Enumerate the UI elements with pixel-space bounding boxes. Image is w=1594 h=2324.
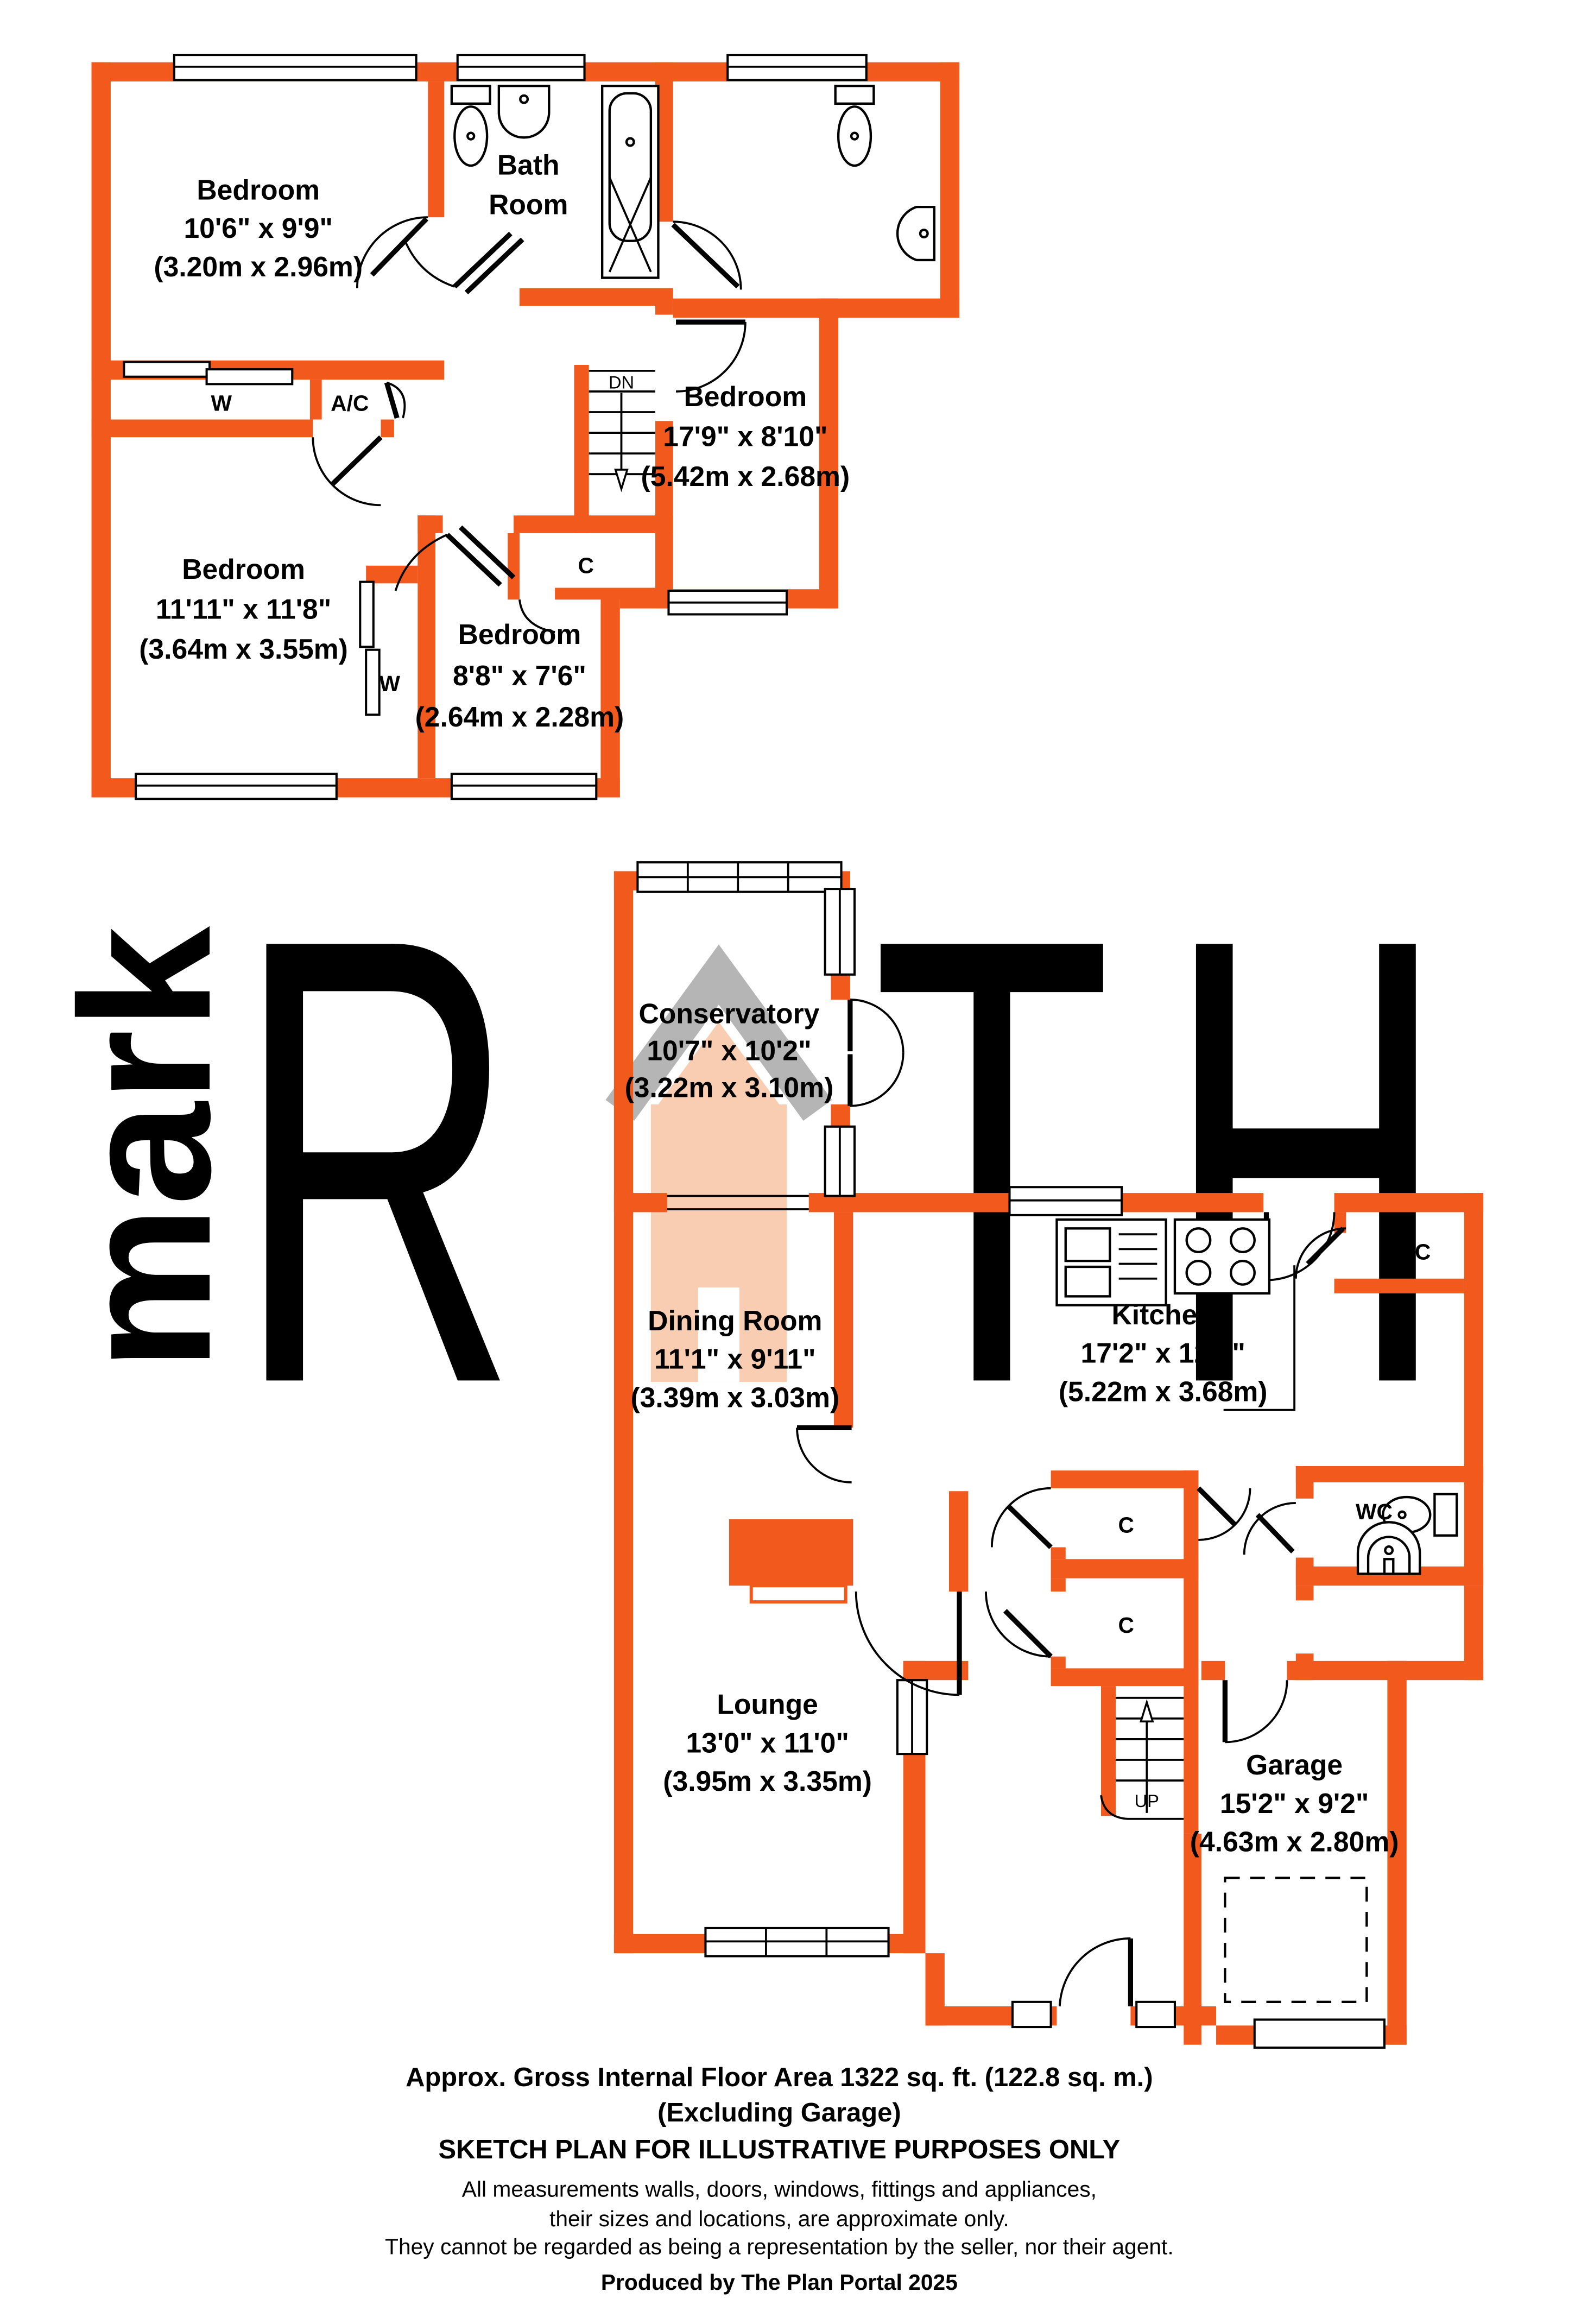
room-size-imperial: 10'7" x 10'2" [647, 1034, 811, 1066]
toilet-icon [452, 86, 490, 104]
kitchen-sink-icon [1066, 1228, 1110, 1261]
sink-icon [499, 86, 549, 137]
airing-cupboard-label: A/C [331, 390, 369, 415]
room-label-bedroom-4: Bedroom [458, 618, 581, 650]
wardrobe-label: W [211, 390, 232, 415]
room-label-kitchen: Kitchen [1112, 1299, 1215, 1330]
sink-tap-icon [1384, 1559, 1393, 1574]
footer-sketch-line: SKETCH PLAN FOR ILLUSTRATIVE PURPOSES ON… [438, 2135, 1120, 2164]
room-size-metric: (5.42m x 2.68m) [641, 460, 850, 492]
floor-plan-page: mark R T H [0, 0, 1594, 2324]
fireplace [729, 1519, 853, 1602]
cupboard-label: C [1415, 1239, 1431, 1264]
footer-disclaimer-2: their sizes and locations, are approxima… [549, 2206, 1009, 2231]
room-size-imperial: 11'1" x 9'11" [654, 1343, 816, 1375]
room-label-garage: Garage [1246, 1749, 1343, 1780]
room-label-dining-room: Dining Room [648, 1305, 822, 1336]
footer-disclaimer-3: They cannot be regarded as being a repre… [385, 2234, 1174, 2259]
cupboard-label: C [578, 553, 594, 578]
cupboard-label: C [1118, 1512, 1134, 1537]
floor-plan-image: mark R T H [0, 0, 1594, 2324]
room-size-imperial: 10'6" x 9'9" [184, 212, 333, 244]
sliding-wardrobe-door [366, 650, 379, 715]
room-size-imperial: 11'11" x 11'8" [156, 593, 331, 625]
watermark-letter-t: T [872, 807, 1112, 1515]
hob-icon [1175, 1220, 1269, 1293]
wardrobe-2-label: W [379, 671, 400, 696]
door-arc [1060, 1938, 1130, 2006]
window [1136, 2002, 1175, 2027]
stairs-down-label: DN [609, 372, 634, 392]
footer-text: Approx. Gross Internal Floor Area 1322 s… [385, 2063, 1174, 2295]
sliding-wardrobe-door [124, 362, 210, 377]
door-leaf [1257, 1515, 1293, 1552]
room-size-imperial: 13'0" x 11'0" [686, 1727, 849, 1758]
room-label-conservatory: Conservatory [638, 997, 819, 1029]
footer-excluding-line: (Excluding Garage) [657, 2098, 901, 2127]
watermark-letter-r: R [234, 807, 518, 1515]
wc-label: WC [1356, 1499, 1393, 1524]
kitchen-sink-icon [1066, 1267, 1110, 1296]
cupboard-label: C [1118, 1613, 1134, 1638]
door-leaf [1005, 1611, 1051, 1656]
first-floor-plan: Bedroom 10'6" x 9'9" (3.20m x 2.96m) Bat… [92, 55, 959, 799]
toilet-icon [1434, 1494, 1457, 1536]
bathroom-fixtures [452, 86, 659, 277]
bathtub-icon [610, 93, 651, 241]
door-leaf [372, 219, 427, 275]
room-size-metric: (3.39m x 3.03m) [630, 1381, 839, 1413]
room-label-bedroom-2: Bedroom [684, 381, 807, 412]
stairs-arrow [1141, 1702, 1153, 1721]
hearth [751, 1586, 846, 1602]
door-arc [797, 1428, 852, 1482]
room-size-metric: (2.64m x 2.28m) [415, 701, 624, 732]
room-size-imperial: 17'2" x 12'1" [1081, 1337, 1245, 1369]
window [1013, 2002, 1051, 2027]
dashed-parking-area [1225, 1878, 1367, 2001]
door-leaf [673, 225, 738, 287]
footer-produced-line: Produced by The Plan Portal 2025 [601, 2270, 958, 2295]
stairs-arrow [616, 470, 628, 489]
door-arc [404, 239, 454, 287]
room-size-metric: (3.22m x 3.10m) [625, 1071, 834, 1103]
watermark-mark-text: mark [41, 925, 249, 1371]
footer-area-line: Approx. Gross Internal Floor Area 1322 s… [406, 2063, 1153, 2092]
watermark-letter-h: H [1163, 807, 1447, 1515]
room-size-imperial: 8'8" x 7'6" [453, 660, 586, 691]
door-leaf [332, 437, 381, 484]
stairs-up-label: UP [1135, 1791, 1159, 1811]
room-size-imperial: 15'2" x 9'2" [1220, 1788, 1369, 1819]
room-size-imperial: 17'9" x 8'10" [663, 421, 827, 452]
footer-disclaimer-1: All measurements walls, doors, windows, … [462, 2177, 1097, 2202]
room-size-metric: (5.22m x 3.68m) [1059, 1375, 1268, 1407]
ensuite-fixtures [836, 86, 934, 260]
sliding-wardrobe-door [207, 369, 293, 384]
room-size-metric: (3.64m x 3.55m) [139, 633, 348, 665]
room-size-metric: (3.95m x 3.35m) [663, 1765, 872, 1797]
room-size-metric: (4.63m x 2.80m) [1190, 1826, 1399, 1858]
room-label-lounge: Lounge [717, 1689, 818, 1720]
door-arc [1225, 1680, 1287, 1742]
room-label-bathroom: Room [489, 189, 568, 220]
room-label-bedroom-3: Bedroom [182, 553, 305, 585]
room-label-bedroom-1: Bedroom [197, 174, 320, 206]
room-size-metric: (3.20m x 2.96m) [154, 251, 363, 282]
toilet-icon [836, 86, 874, 104]
room-label-bathroom: Bath [497, 149, 560, 180]
sliding-wardrobe-door [360, 582, 373, 647]
garage-door [1255, 2019, 1384, 2048]
